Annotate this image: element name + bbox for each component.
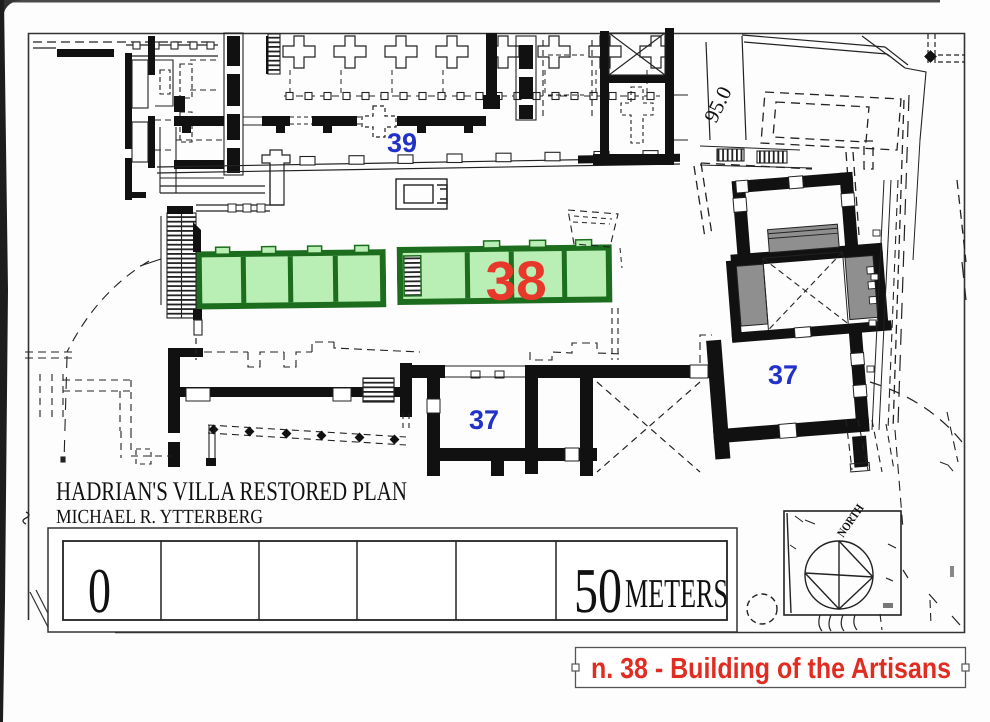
svg-text:n. 38 - Building of the Artisa: n. 38 - Building of the Artisans: [591, 653, 951, 685]
svg-text:50: 50: [574, 555, 622, 626]
svg-text:39: 39: [387, 128, 417, 158]
svg-text:38: 38: [485, 249, 547, 312]
svg-text:HADRIAN'S VILLA RESTORED PLAN: HADRIAN'S VILLA RESTORED PLAN: [56, 476, 407, 506]
svg-text:95.0: 95.0: [699, 83, 737, 127]
svg-text:METERS: METERS: [625, 570, 728, 616]
svg-text:37: 37: [469, 405, 499, 435]
svg-text:37: 37: [768, 360, 798, 390]
svg-text:NORTH: NORTH: [834, 501, 867, 540]
svg-text:MICHAEL R. YTTERBERG: MICHAEL R. YTTERBERG: [56, 506, 263, 528]
svg-text:0: 0: [88, 555, 111, 626]
